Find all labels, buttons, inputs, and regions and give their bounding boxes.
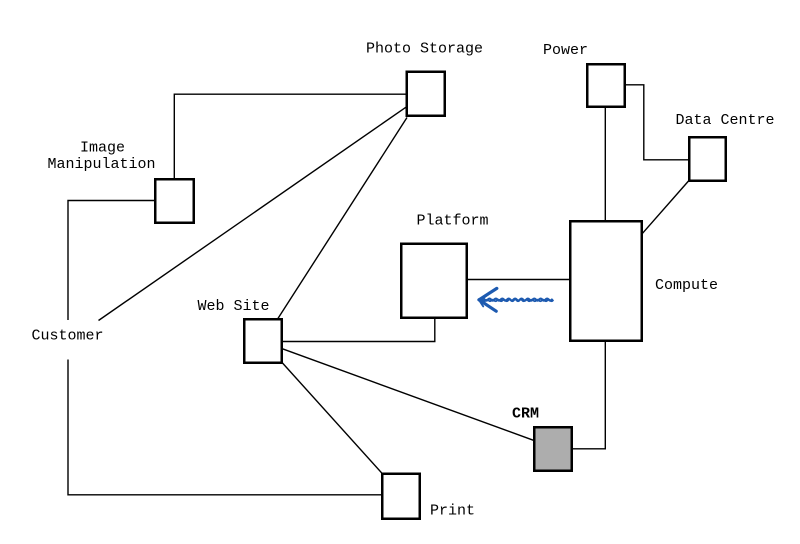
- svg-text:Customer: Customer: [32, 328, 104, 345]
- svg-text:Image: Image: [80, 140, 125, 157]
- svg-text:CRM: CRM: [512, 406, 539, 423]
- svg-text:Data Centre: Data Centre: [676, 112, 775, 129]
- svg-text:Compute: Compute: [655, 277, 718, 294]
- svg-text:Platform: Platform: [417, 213, 489, 230]
- svg-text:Photo Storage: Photo Storage: [366, 40, 483, 57]
- svg-text:Manipulation: Manipulation: [48, 156, 156, 173]
- svg-text:Print: Print: [430, 503, 475, 520]
- svg-text:Power: Power: [543, 42, 588, 59]
- svg-text:Web Site: Web Site: [198, 298, 270, 315]
